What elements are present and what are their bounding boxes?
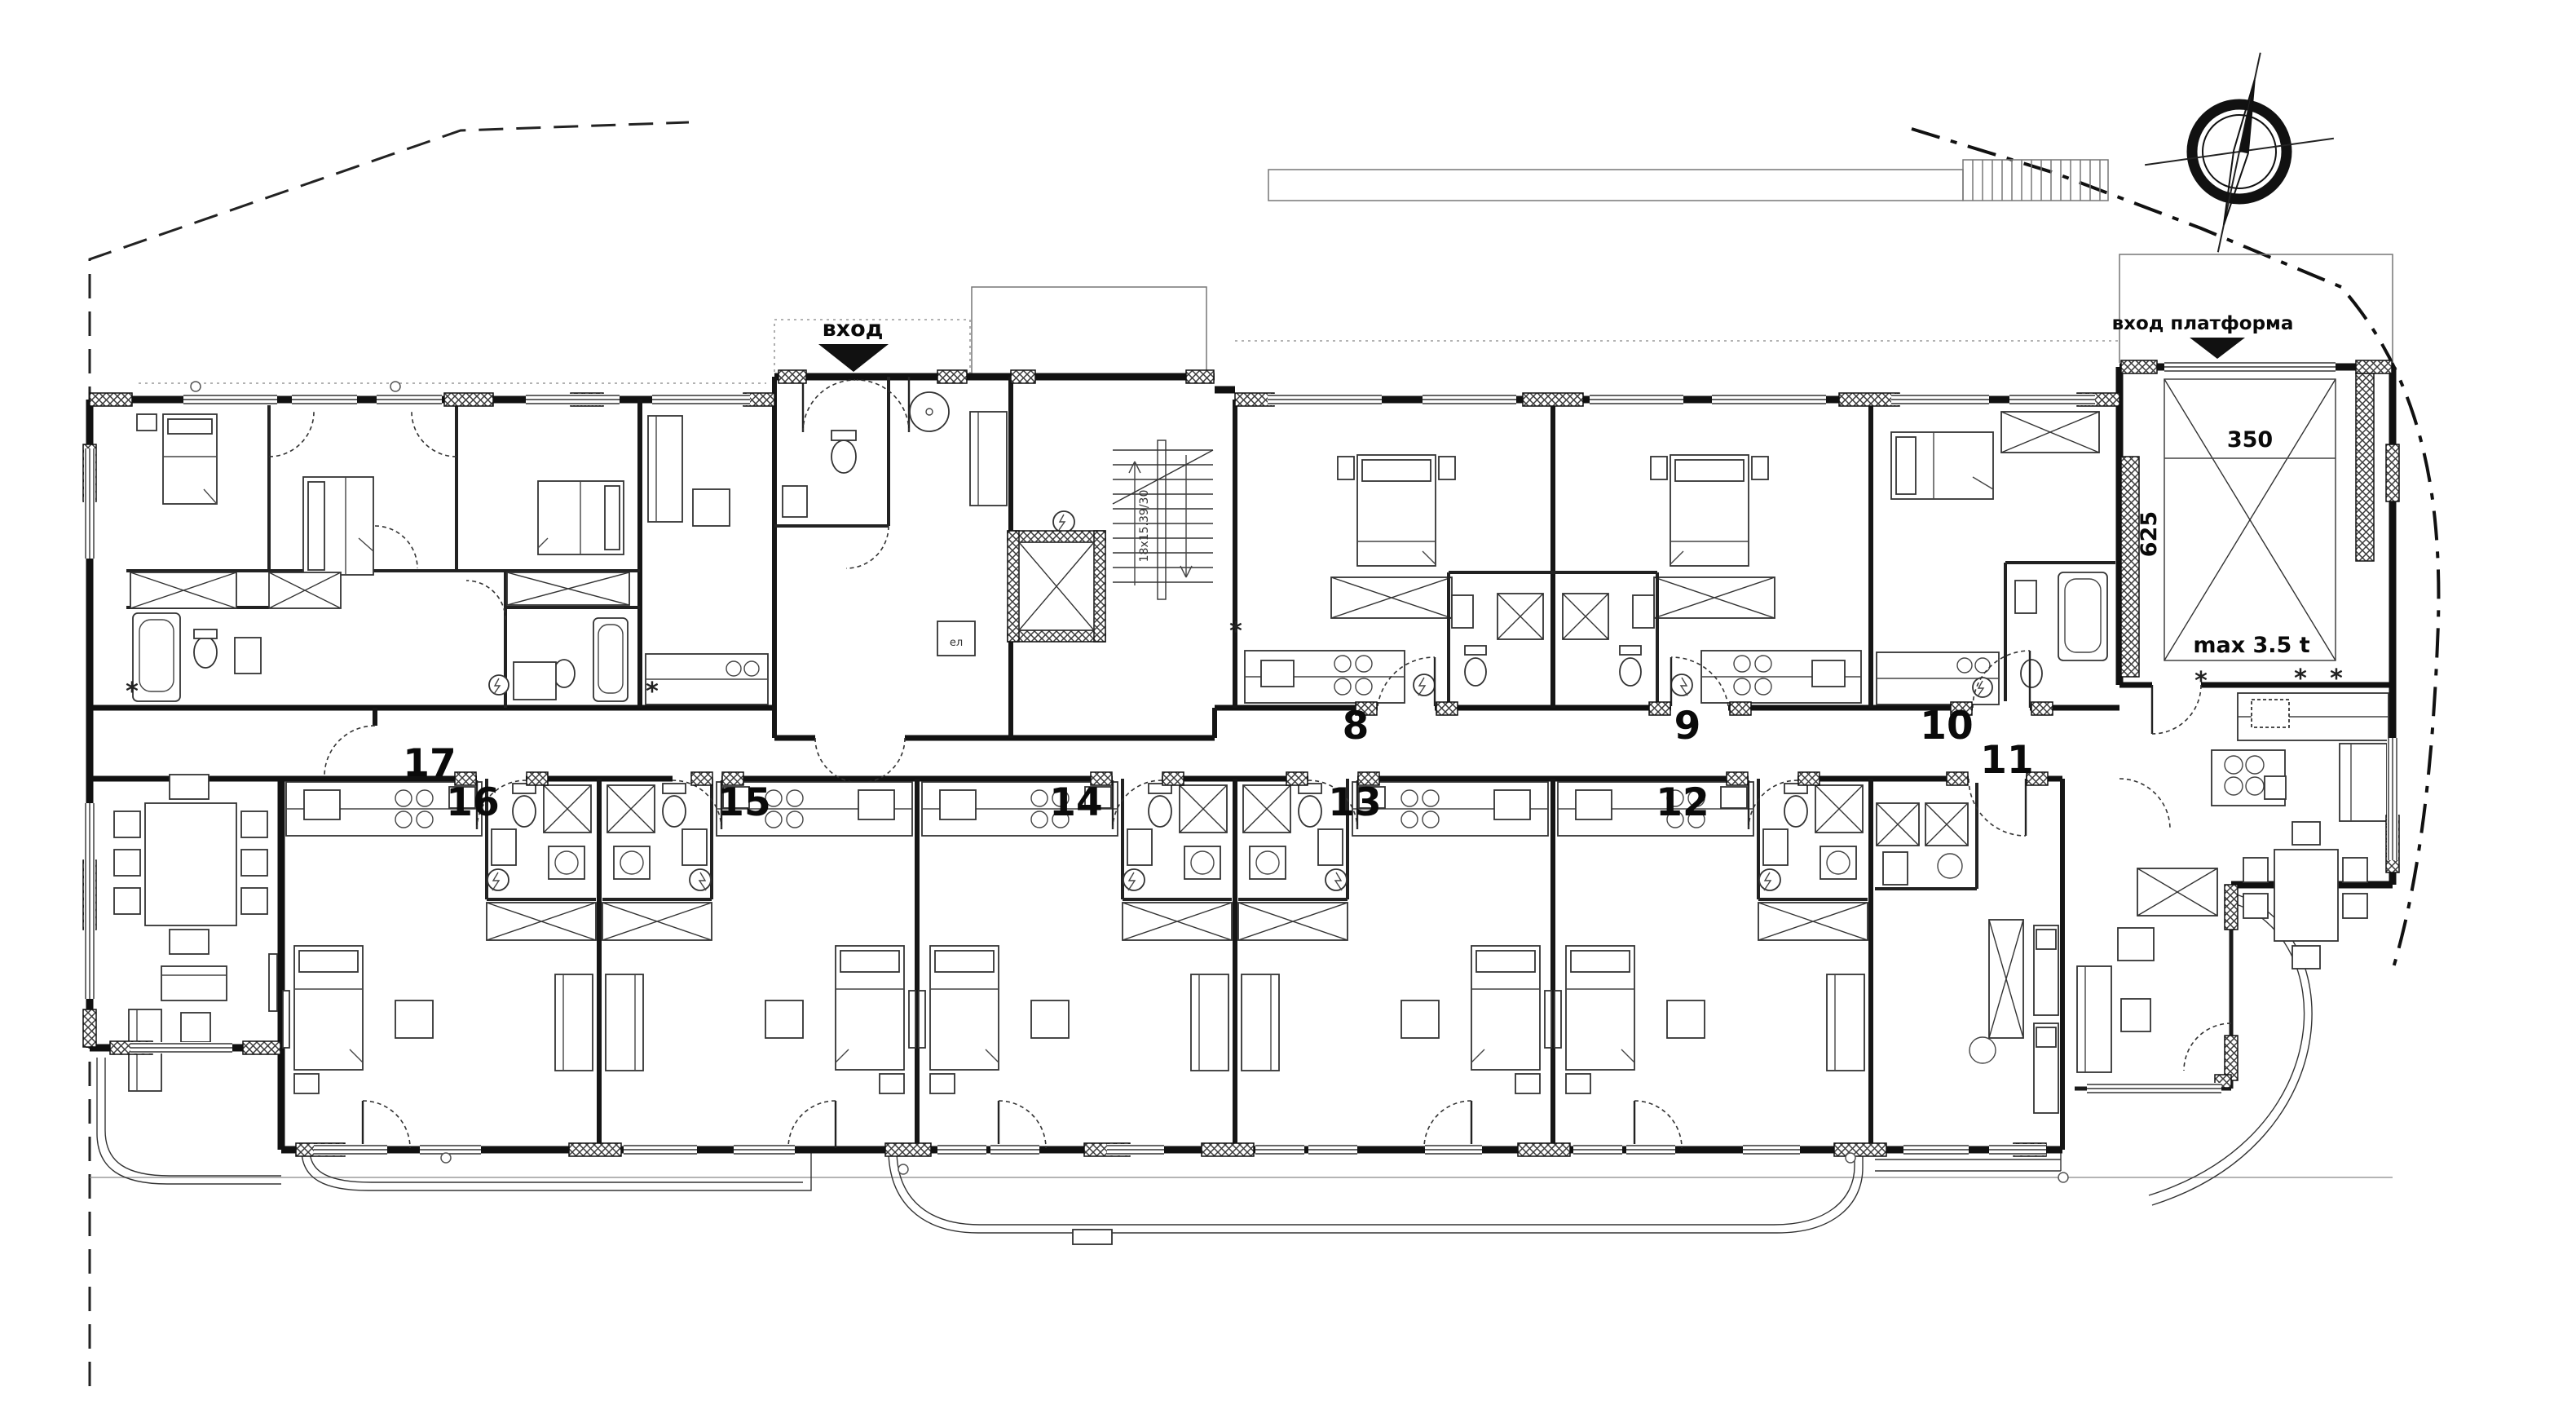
window [1255,1144,1304,1155]
wall-column [1834,1143,1886,1156]
platform-entrance-label: вход платформа [2112,313,2294,334]
window [1903,1144,1969,1155]
wall-column [1798,772,1820,785]
corridor [90,708,2119,779]
wall-column [2031,702,2053,715]
window [1743,1144,1800,1155]
electrical-label: ел [950,637,963,649]
platform-depth-label: 625 [2137,511,2162,557]
unit-number-12: 12 [1656,780,1709,825]
window [2087,1083,2221,1094]
wall-column [2121,360,2157,373]
window [2009,394,2095,405]
wall-column [1518,1143,1570,1156]
drain-mark [191,382,201,391]
window [937,1144,986,1155]
wall-column [90,393,132,406]
window [1891,394,1989,405]
wall-column [1286,772,1308,785]
wall-column [937,370,967,383]
unit-number-11: 11 [1980,738,2033,783]
down-arrow-icon [2190,338,2245,359]
wall-column [1011,370,1035,383]
unit-8 [1245,455,1553,708]
window [314,1144,387,1155]
window [1626,1144,1675,1155]
unit-11-interior [1875,779,2058,1113]
wall-column [885,1143,931,1156]
window [526,394,620,405]
drain-mark [2058,1173,2068,1182]
window [1268,394,1382,405]
wall-column [2225,1036,2238,1080]
wall-column [2356,360,2392,373]
wall-column [1649,702,1670,715]
platform-width-label: 350 [2227,427,2273,453]
drain-mark [1846,1153,1855,1163]
wall-column [569,1143,621,1156]
north-compass-icon [2130,34,2348,271]
unit-13 [1238,779,1551,1148]
kitchen-marker: * [2194,667,2208,696]
wall-column [2225,885,2238,930]
wall-column [779,370,806,383]
unit-number-15: 15 [717,780,770,825]
window [1712,394,1826,405]
wall-column [2356,373,2374,561]
stairs-dimension-label: 18x15.39/30 [1138,490,1151,563]
drain-mark [390,382,400,391]
kitchen-marker: * [646,678,659,706]
drain-mark [441,1153,451,1163]
wall-column [2121,457,2139,677]
staircase: 18x15.39/30 [1113,440,1213,599]
kitchen-marker: * [126,678,139,706]
wall-column [1727,772,1748,785]
wall-column [527,772,548,785]
unit-12 [1555,779,1868,1148]
wall-column [1839,393,1899,406]
unit-number-8: 8 [1343,704,1370,749]
window [652,394,750,405]
down-arrow-icon [818,344,889,372]
kitchen-marker: * [2330,665,2343,693]
window [734,1144,795,1155]
window [84,803,95,999]
window [130,1042,232,1053]
unit-number-13: 13 [1328,780,1381,825]
elevator-shaft-icon [1008,531,1105,642]
entrance-lobby: ел [783,377,1074,783]
window [183,394,277,405]
window [2164,361,2336,373]
drain-mark [898,1164,908,1174]
wall-column [1162,772,1184,785]
window [1573,1144,1622,1155]
window [292,394,357,405]
wall-column [1947,772,1968,785]
unit-number-9: 9 [1674,704,1701,749]
window [1107,1144,1164,1155]
window [377,394,442,405]
window [1308,1144,1357,1155]
platform-capacity-label: max 3.5 t [2193,633,2309,658]
wall-column [444,393,493,406]
window [624,1144,697,1155]
kitchen-marker: * [2294,665,2307,693]
wall-column [1202,1143,1254,1156]
window [2387,738,2398,860]
window [990,1144,1039,1155]
wall-column [691,772,712,785]
window [84,448,95,559]
wall-column [1730,702,1751,715]
wall-column [1436,702,1458,715]
wall-column [243,1041,280,1054]
floor-plan-page: ел 18x15.39/30 [0,0,2576,1409]
unit-number-10: 10 [1920,704,1973,749]
unit-number-14: 14 [1049,780,1102,825]
unit-16 [283,779,596,1148]
window [1590,394,1683,405]
unit-number-17: 17 [403,741,456,786]
floor-plan-canvas: ел 18x15.39/30 [0,0,2576,1409]
unit-10-interior [1877,412,2115,708]
wall-column [2386,444,2399,501]
wall-column [83,1009,96,1047]
window [1989,1144,2046,1155]
window [1425,1144,1482,1155]
wall-column [1523,393,1583,406]
unit-15 [602,779,915,1148]
wall-column [1186,370,1214,383]
unit-9 [1553,455,1861,708]
kitchen-marker: * [1229,617,1242,646]
entrance-label: вход [823,316,884,342]
unit-14 [919,779,1232,1148]
entrance-annotation: вход [818,316,889,372]
platform-entrance-annotation: вход платформа [2112,313,2294,359]
window [420,1144,481,1155]
unit-number-16: 16 [446,780,499,825]
window [1423,394,1516,405]
